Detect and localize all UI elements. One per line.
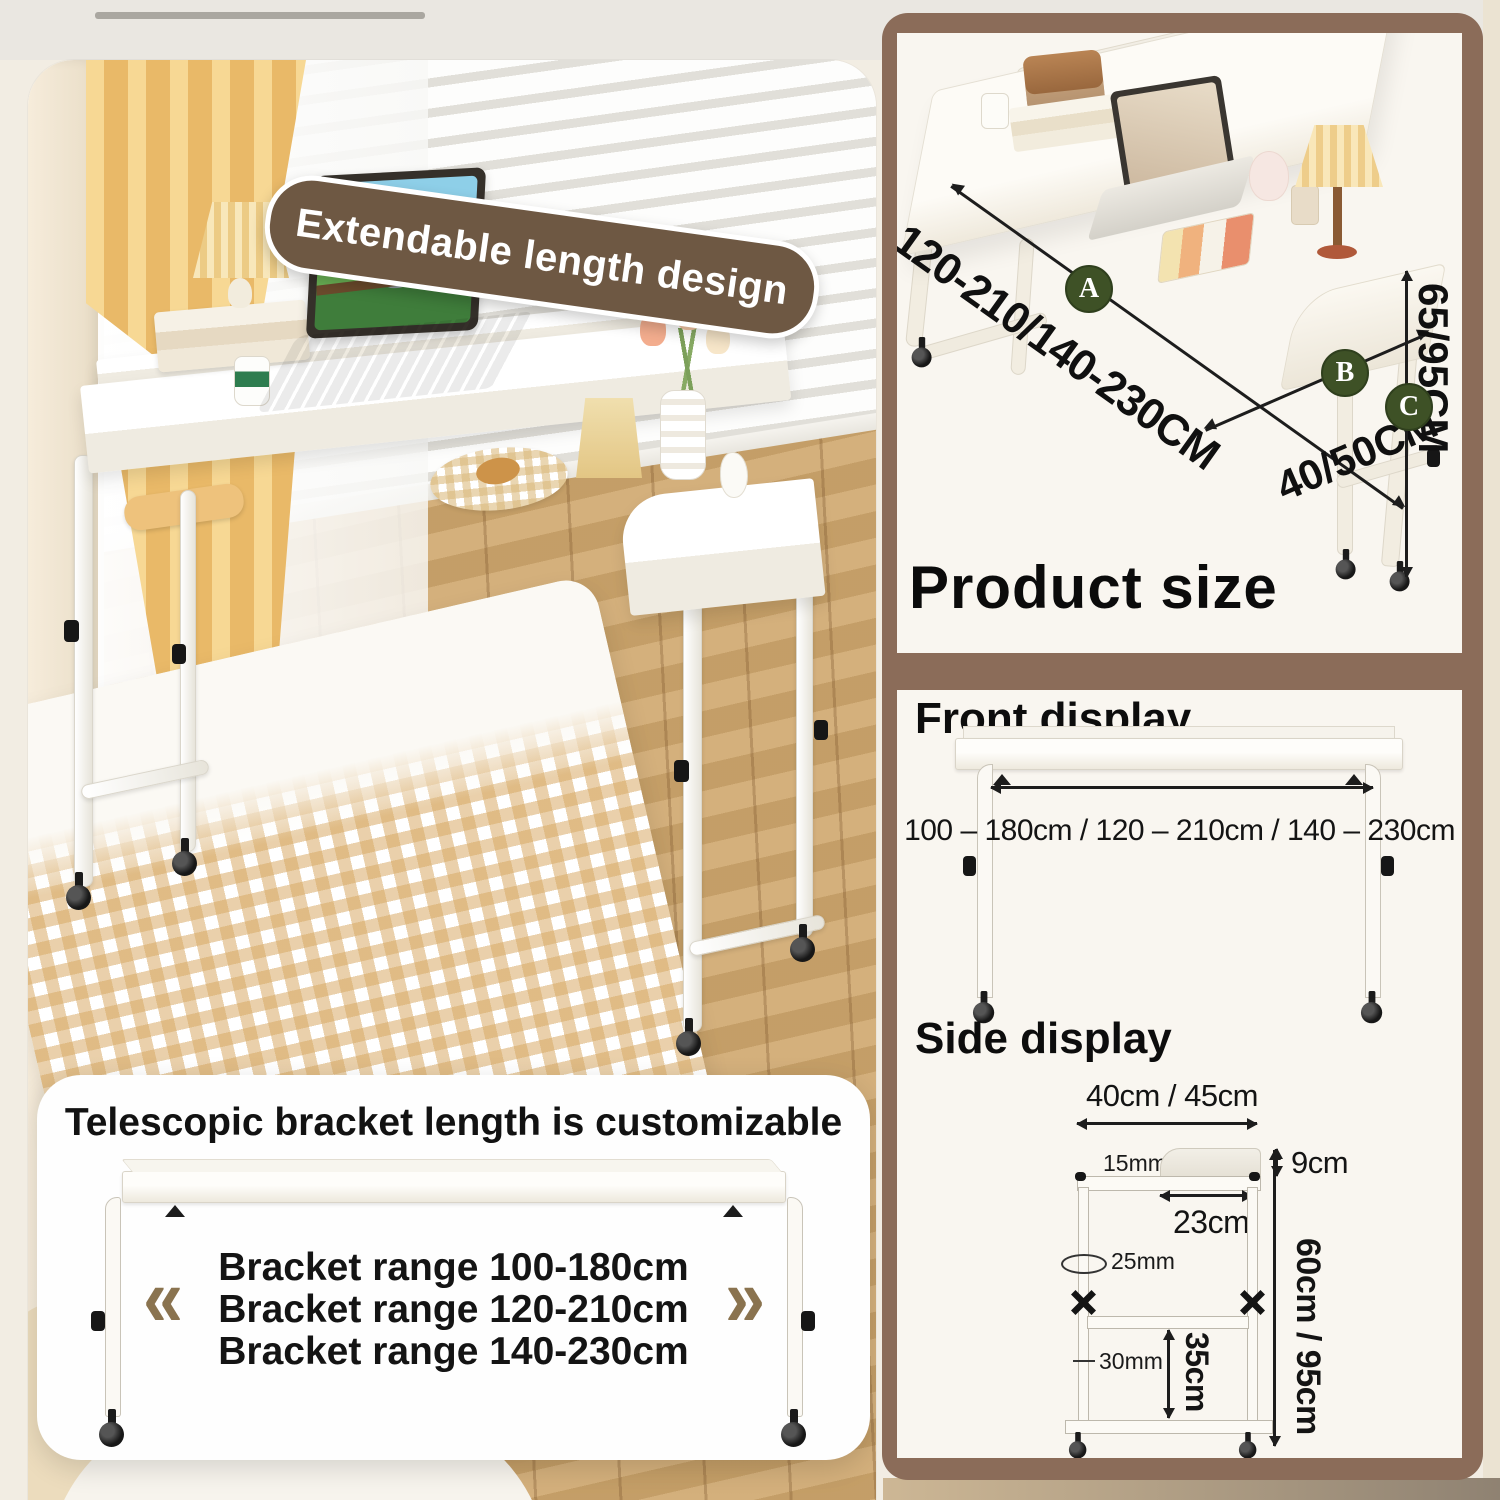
front-left-knob (963, 856, 976, 876)
illus-right-caster-rear (1336, 549, 1357, 581)
product-infographic: Extendable length design Telescopic brac… (0, 0, 1500, 1500)
side-display-heading: Side display (915, 1014, 1172, 1064)
telescopic-card-title: Telescopic bracket length is customizabl… (37, 1101, 870, 1145)
side-shelf (1077, 1176, 1261, 1191)
white-sculpture (720, 452, 748, 498)
side-left-caster (1069, 1432, 1087, 1458)
side-shelf-right-cap (1249, 1172, 1260, 1181)
illus-left-caster (912, 337, 933, 369)
gift-bag (576, 398, 642, 478)
product-size-caption: Product size (909, 553, 1278, 622)
bracket-left-clamp (165, 1205, 185, 1217)
ceiling-vent-decor (95, 12, 425, 19)
shelf-depth-label: 23cm (1173, 1204, 1249, 1241)
background-right-strip (1483, 0, 1500, 1500)
clearance-arrow (1167, 1330, 1170, 1418)
pen-cup (1291, 185, 1319, 225)
side-width-arrow (1077, 1122, 1257, 1125)
clearance-label: 35cm (1178, 1332, 1215, 1412)
lamp-base (228, 278, 252, 308)
front-right-caster (1361, 991, 1383, 1025)
height-badge: C (1385, 383, 1433, 431)
lip-height-label: 9cm (1291, 1145, 1348, 1181)
height-dimension-label: 65/95CM (1409, 283, 1457, 583)
depth-badge: B (1321, 349, 1369, 397)
plush-toy (1249, 151, 1289, 201)
telescopic-card: Telescopic bracket length is customizabl… (37, 1075, 870, 1460)
illus-lamp-base (1317, 245, 1357, 259)
tube-lower-label: 30mm (1099, 1348, 1163, 1375)
side-lower-shelf (1087, 1316, 1249, 1329)
side-height-label: 60cm / 95cm (1288, 1238, 1327, 1435)
next-chevron-icon: » (725, 1251, 765, 1345)
front-range-label: 100 – 180cm / 120 – 210cm / 140 – 230cm (897, 814, 1462, 848)
bracket-tabletop-face (121, 1159, 782, 1172)
tube-lower-tick (1073, 1360, 1095, 1362)
front-left-leg (977, 764, 993, 998)
side-shelf-left-cap (1075, 1172, 1086, 1181)
side-right-caster (1239, 1432, 1257, 1458)
bracket-tabletop (122, 1171, 786, 1203)
bracket-right-caster (781, 1409, 807, 1449)
illus-mug (981, 93, 1009, 129)
front-range-arrow (991, 786, 1373, 789)
side-width-label: 40cm / 45cm (1047, 1078, 1297, 1114)
flower-vase (660, 390, 706, 480)
side-top-thickness-label: 15mm (1103, 1150, 1167, 1177)
front-right-knob (1381, 856, 1394, 876)
prev-chevron-icon: « (143, 1251, 183, 1345)
product-size-panel: 120-210/140-230CM A 40/50CM B 65/95CM C … (897, 33, 1462, 653)
tube-upper-ellipse (1061, 1254, 1107, 1274)
side-height-arrow (1273, 1150, 1276, 1446)
bracket-right-clamp (723, 1205, 743, 1217)
lifestyle-photo: Extendable length design Telescopic brac… (28, 60, 876, 1500)
colorful-notebook (1157, 212, 1254, 284)
bracket-left-caster (99, 1409, 125, 1449)
length-badge: A (1065, 265, 1113, 313)
shelf-depth-arrow (1160, 1194, 1252, 1197)
front-tabletop (955, 738, 1403, 770)
info-column: 120-210/140-230CM A 40/50CM B 65/95CM C … (882, 13, 1483, 1480)
tube-upper-label: 25mm (1111, 1248, 1175, 1275)
illus-lamp-stem (1333, 187, 1342, 249)
front-right-leg (1365, 764, 1381, 998)
background-floor-strip (883, 1478, 1500, 1500)
front-right-clamp (1345, 774, 1363, 785)
display-panel: Front display 100 – 180cm / 120 – 210cm … (897, 690, 1462, 1458)
side-back-lip (1160, 1148, 1261, 1178)
